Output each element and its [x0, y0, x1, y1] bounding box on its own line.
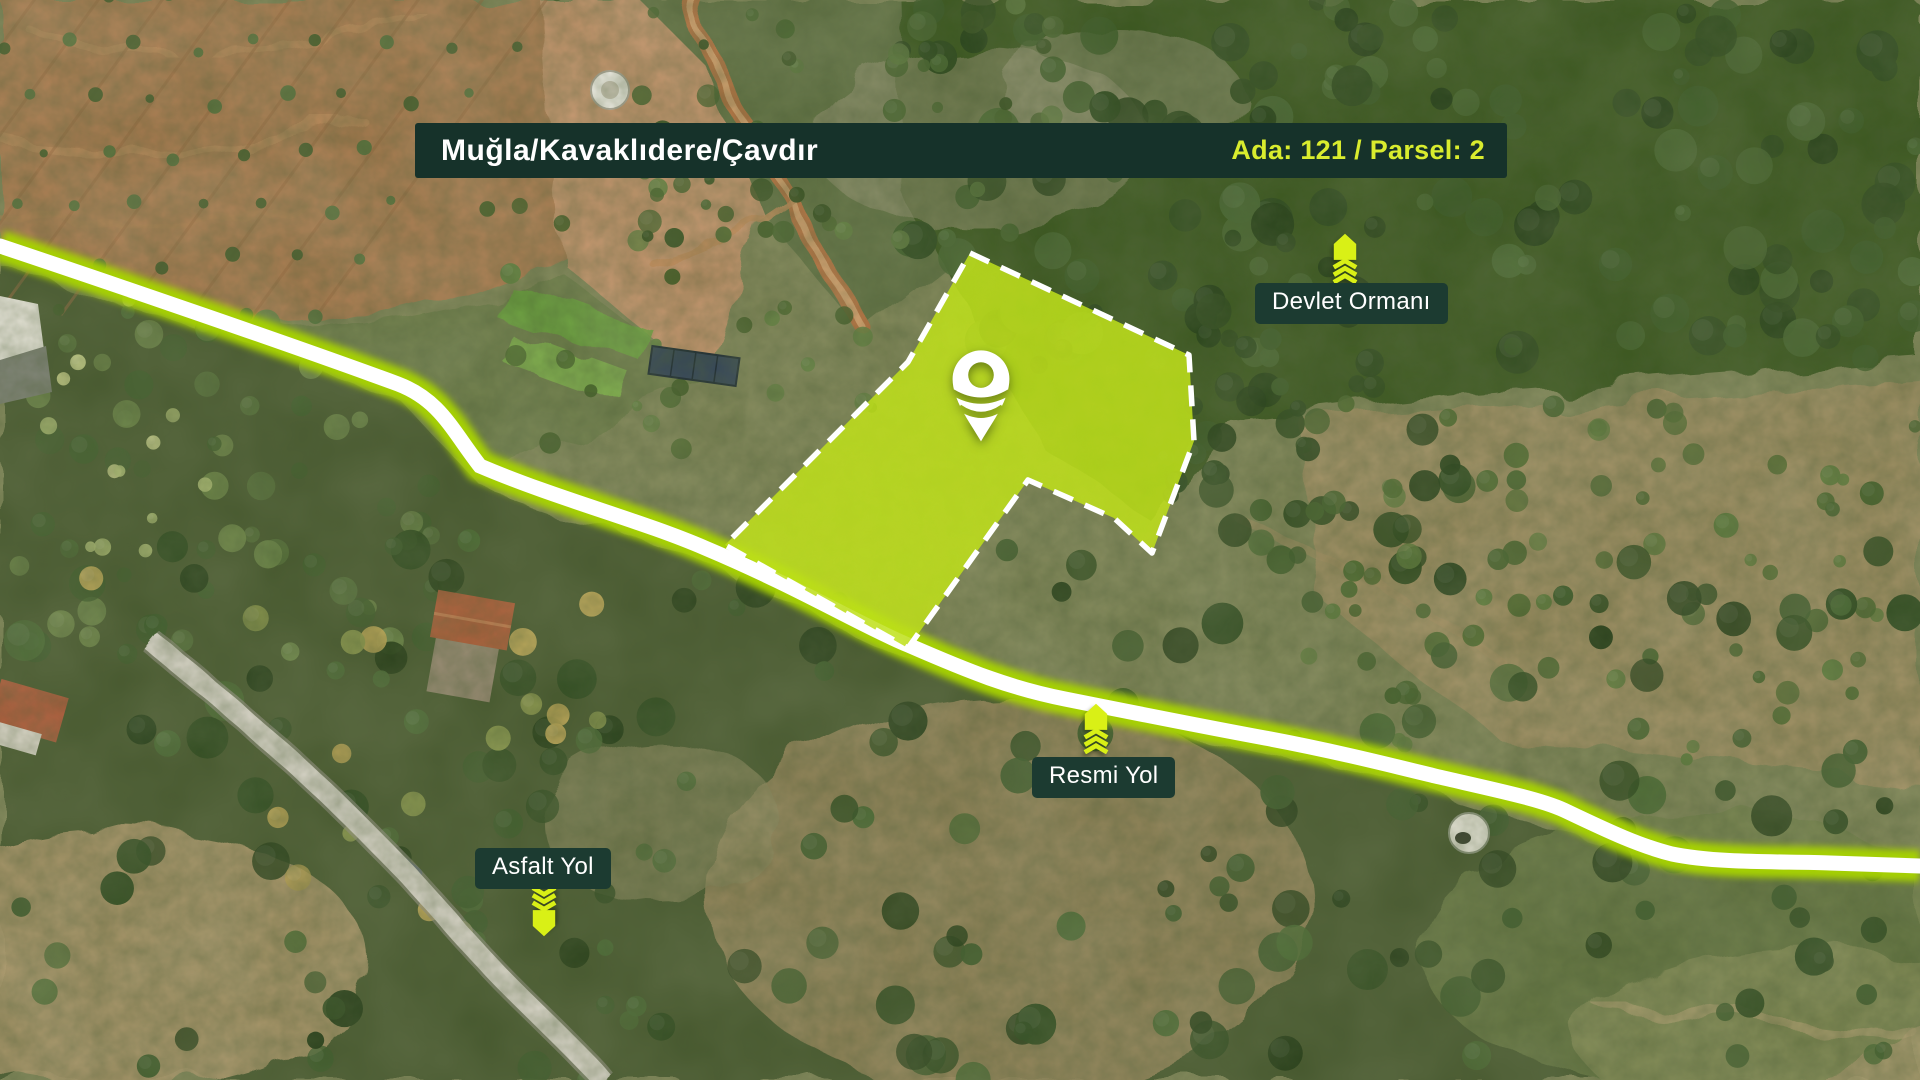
chevron-pole-marker-icon	[530, 886, 558, 938]
field-location-pin-icon	[945, 344, 1017, 444]
chevron-pole-marker-icon	[1331, 232, 1359, 284]
state-forest-label: Devlet Ormanı	[1255, 283, 1448, 324]
location-header-bar: Muğla/Kavaklıdere/Çavdır Ada: 121 / Pars…	[415, 123, 1507, 178]
official-road-label: Resmi Yol	[1032, 757, 1175, 798]
ada-parsel-badge: Ada: 121 / Parsel: 2	[1231, 135, 1485, 166]
asphalt-road-label: Asfalt Yol	[475, 848, 611, 889]
location-title: Muğla/Kavaklıdere/Çavdır	[441, 134, 818, 168]
listing-map-image: Muğla/Kavaklıdere/Çavdır Ada: 121 / Pars…	[0, 0, 1920, 1080]
chevron-pole-marker-icon	[1082, 702, 1110, 754]
